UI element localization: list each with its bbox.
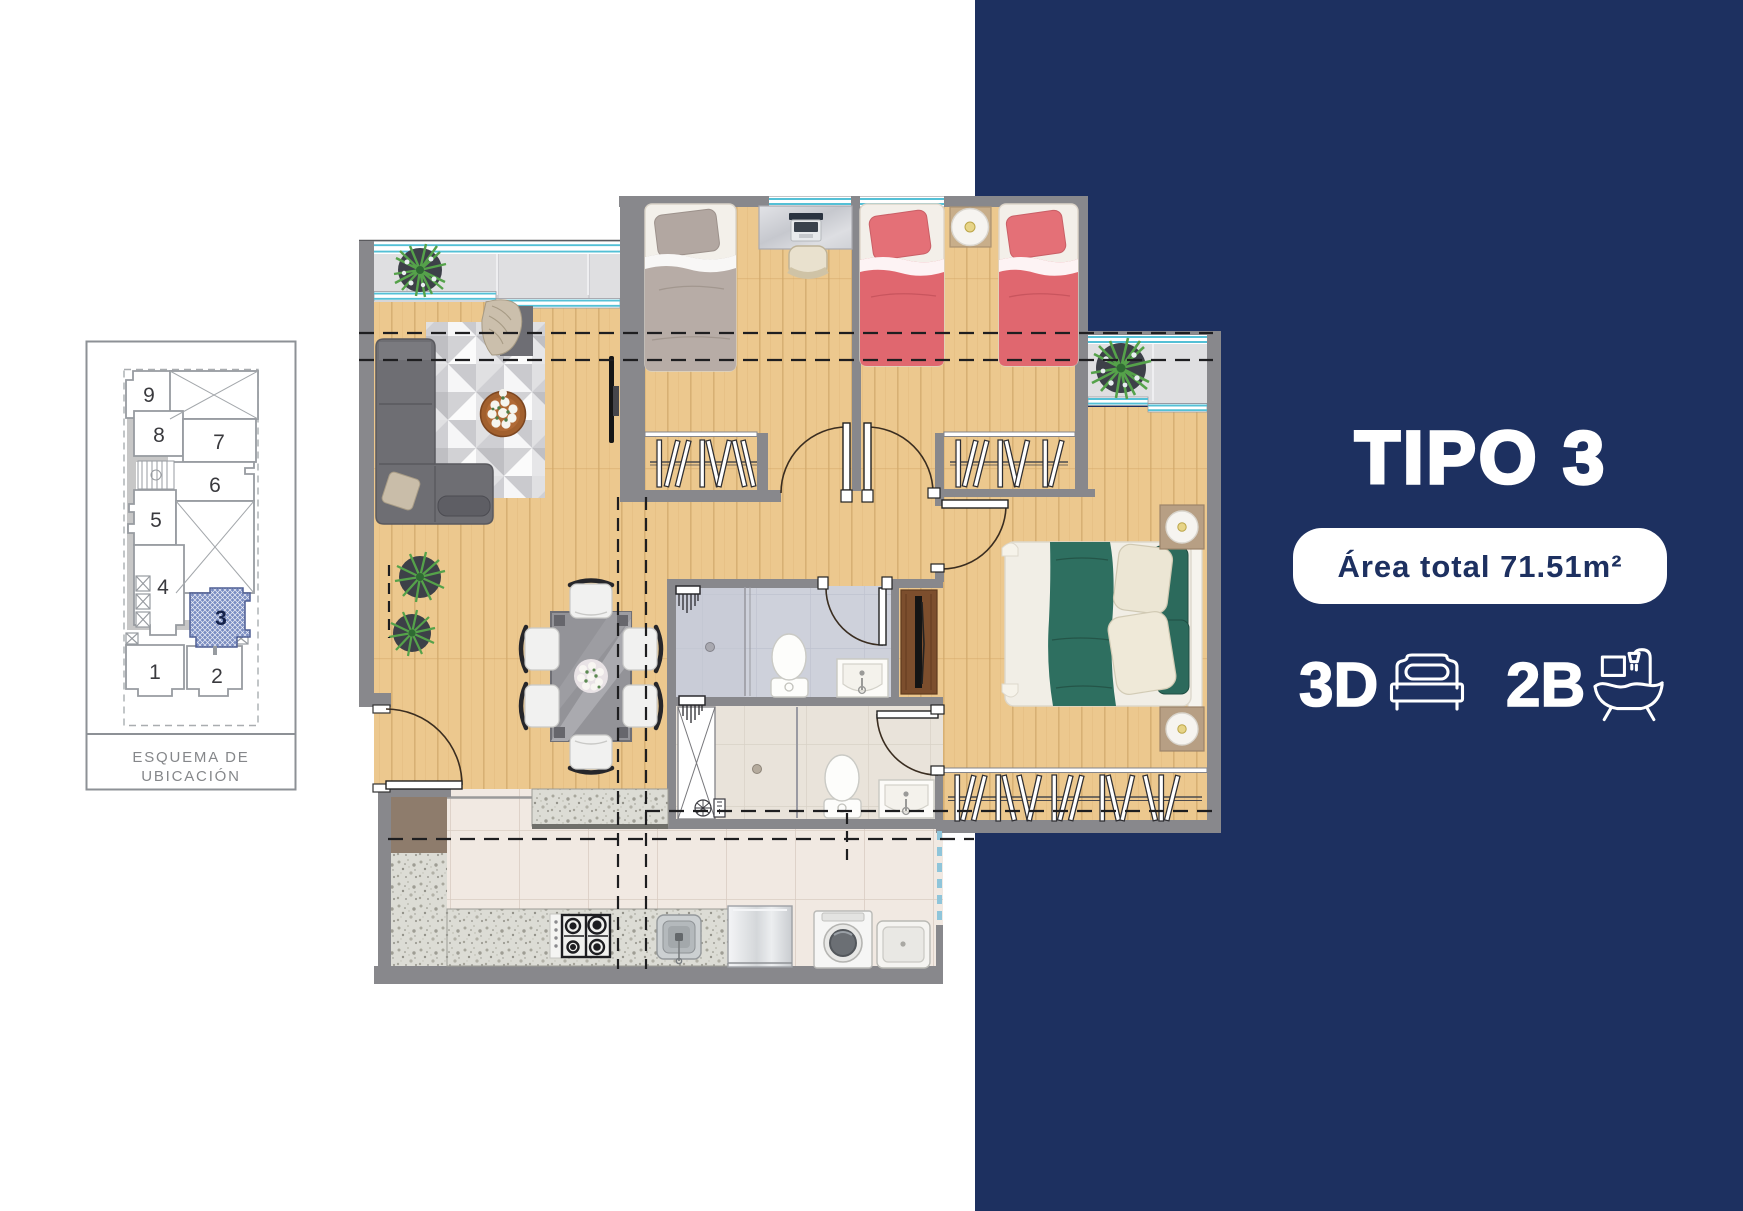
svg-text:3: 3	[215, 607, 227, 630]
svg-text:2: 2	[211, 665, 223, 688]
svg-text:ESQUEMA DE: ESQUEMA DE	[132, 749, 249, 766]
svg-text:3D: 3D	[1299, 651, 1378, 720]
svg-text:4: 4	[157, 576, 169, 599]
svg-text:8: 8	[153, 424, 165, 447]
svg-text:TIPO 3: TIPO 3	[1355, 416, 1607, 499]
svg-text:5: 5	[150, 509, 162, 532]
svg-text:1: 1	[149, 661, 161, 684]
svg-text:7: 7	[213, 431, 225, 454]
svg-text:6: 6	[209, 474, 221, 497]
svg-text:Área total 71.51m²: Área total 71.51m²	[1337, 549, 1622, 584]
svg-text:9: 9	[143, 384, 155, 407]
svg-text:UBICACIÓN: UBICACIÓN	[141, 768, 241, 785]
svg-text:2B: 2B	[1506, 651, 1585, 720]
